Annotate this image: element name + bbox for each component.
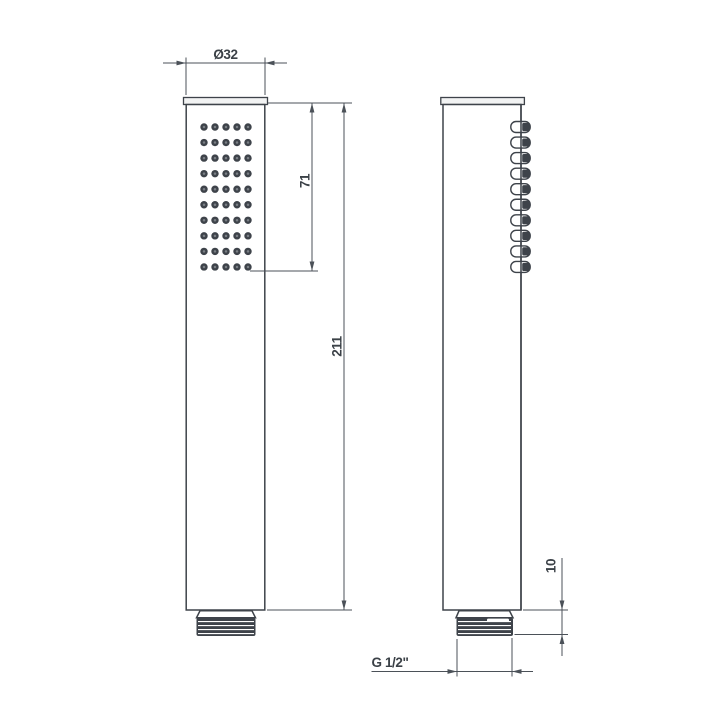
side-view-thread-collar	[456, 611, 513, 618]
arrowhead-left	[512, 669, 522, 674]
spray-hole-center	[247, 157, 250, 160]
spray-hole-center	[247, 126, 250, 129]
spray-hole-center	[247, 204, 250, 207]
spray-hole-center	[214, 250, 217, 253]
dimension-diameter: Ø32	[163, 47, 287, 95]
side-view	[441, 98, 530, 637]
spray-hole-center	[214, 188, 217, 191]
spray-hole-center	[247, 141, 250, 144]
spray-hole-center	[236, 266, 239, 269]
spray-hole-center	[247, 250, 250, 253]
nozzle-tip	[522, 154, 529, 162]
spray-hole-center	[203, 188, 206, 191]
nozzle-tip	[522, 247, 529, 255]
spray-hole-center	[203, 157, 206, 160]
spray-hole-center	[214, 141, 217, 144]
spray-face-length-label: 71	[298, 173, 313, 188]
spray-hole-center	[247, 266, 250, 269]
dimension-thread-length: 10	[515, 558, 569, 656]
spray-hole-center	[236, 235, 239, 238]
total-length-label: 211	[330, 335, 345, 356]
spray-hole-center	[247, 235, 250, 238]
spray-hole-center	[203, 235, 206, 238]
front-view-top-cap	[184, 98, 268, 105]
arrowhead-up	[342, 103, 347, 113]
nozzle-tip	[522, 185, 529, 193]
nozzle-tip	[522, 216, 529, 224]
spray-hole-center	[214, 172, 217, 175]
arrowhead-up	[560, 635, 565, 645]
spray-hole-center	[225, 235, 228, 238]
spray-hole-center	[203, 141, 206, 144]
thread-highlight	[487, 619, 509, 622]
spray-hole-center	[225, 172, 228, 175]
arrowhead-down	[310, 262, 315, 272]
spray-hole-center	[236, 219, 239, 222]
spray-hole-center	[247, 188, 250, 191]
arrowhead-left	[265, 61, 275, 66]
shower-handset-drawing: Ø32 71 211 10 G 1/2"	[0, 0, 720, 720]
spray-hole-center	[203, 172, 206, 175]
front-view-body	[186, 105, 265, 611]
spray-hole-center	[214, 266, 217, 269]
thread-size-label: G 1/2"	[372, 655, 409, 670]
spray-hole-center	[225, 126, 228, 129]
front-view-threads	[197, 618, 256, 636]
side-view-top-cap	[441, 98, 525, 105]
spray-hole-center	[203, 204, 206, 207]
arrowhead-down	[560, 601, 565, 611]
spray-hole-center	[214, 219, 217, 222]
diameter-label: Ø32	[213, 47, 237, 62]
spray-hole-center	[236, 157, 239, 160]
spray-hole-center	[225, 219, 228, 222]
side-view-threads	[457, 618, 514, 636]
nozzle-tip	[522, 123, 529, 131]
nozzle-tip	[522, 263, 529, 271]
front-view-thread-collar	[197, 611, 256, 618]
spray-hole-center	[225, 266, 228, 269]
side-view-body	[443, 105, 521, 611]
spray-hole-center	[203, 250, 206, 253]
spray-hole-center	[214, 235, 217, 238]
spray-hole-center	[236, 172, 239, 175]
spray-hole-center	[225, 250, 228, 253]
spray-hole-center	[236, 250, 239, 253]
nozzle-tip	[522, 232, 529, 240]
spray-hole-center	[247, 172, 250, 175]
spray-hole-center	[225, 157, 228, 160]
thread-length-label: 10	[544, 559, 559, 573]
spray-hole-center	[214, 126, 217, 129]
spray-hole-center	[203, 266, 206, 269]
arrowhead-down	[342, 601, 347, 611]
spray-hole-center	[236, 141, 239, 144]
arrowhead-up	[310, 103, 315, 113]
spray-hole-center	[225, 204, 228, 207]
spray-hole-center	[203, 219, 206, 222]
technical-drawing-canvas: Ø32 71 211 10 G 1/2"	[0, 0, 720, 720]
spray-hole-center	[203, 126, 206, 129]
arrowhead-right	[177, 61, 187, 66]
spray-hole-center	[214, 157, 217, 160]
spray-hole-center	[225, 141, 228, 144]
front-view	[184, 98, 268, 637]
spray-hole-center	[236, 188, 239, 191]
dimension-thread-size: G 1/2"	[372, 638, 534, 677]
nozzle-tip	[522, 170, 529, 178]
spray-hole-center	[225, 188, 228, 191]
nozzle-tip	[522, 201, 529, 209]
spray-hole-center	[236, 204, 239, 207]
spray-hole-center	[214, 204, 217, 207]
spray-hole-center	[247, 219, 250, 222]
arrowhead-right	[448, 669, 458, 674]
spray-hole-center	[236, 126, 239, 129]
nozzle-tip	[522, 138, 529, 146]
